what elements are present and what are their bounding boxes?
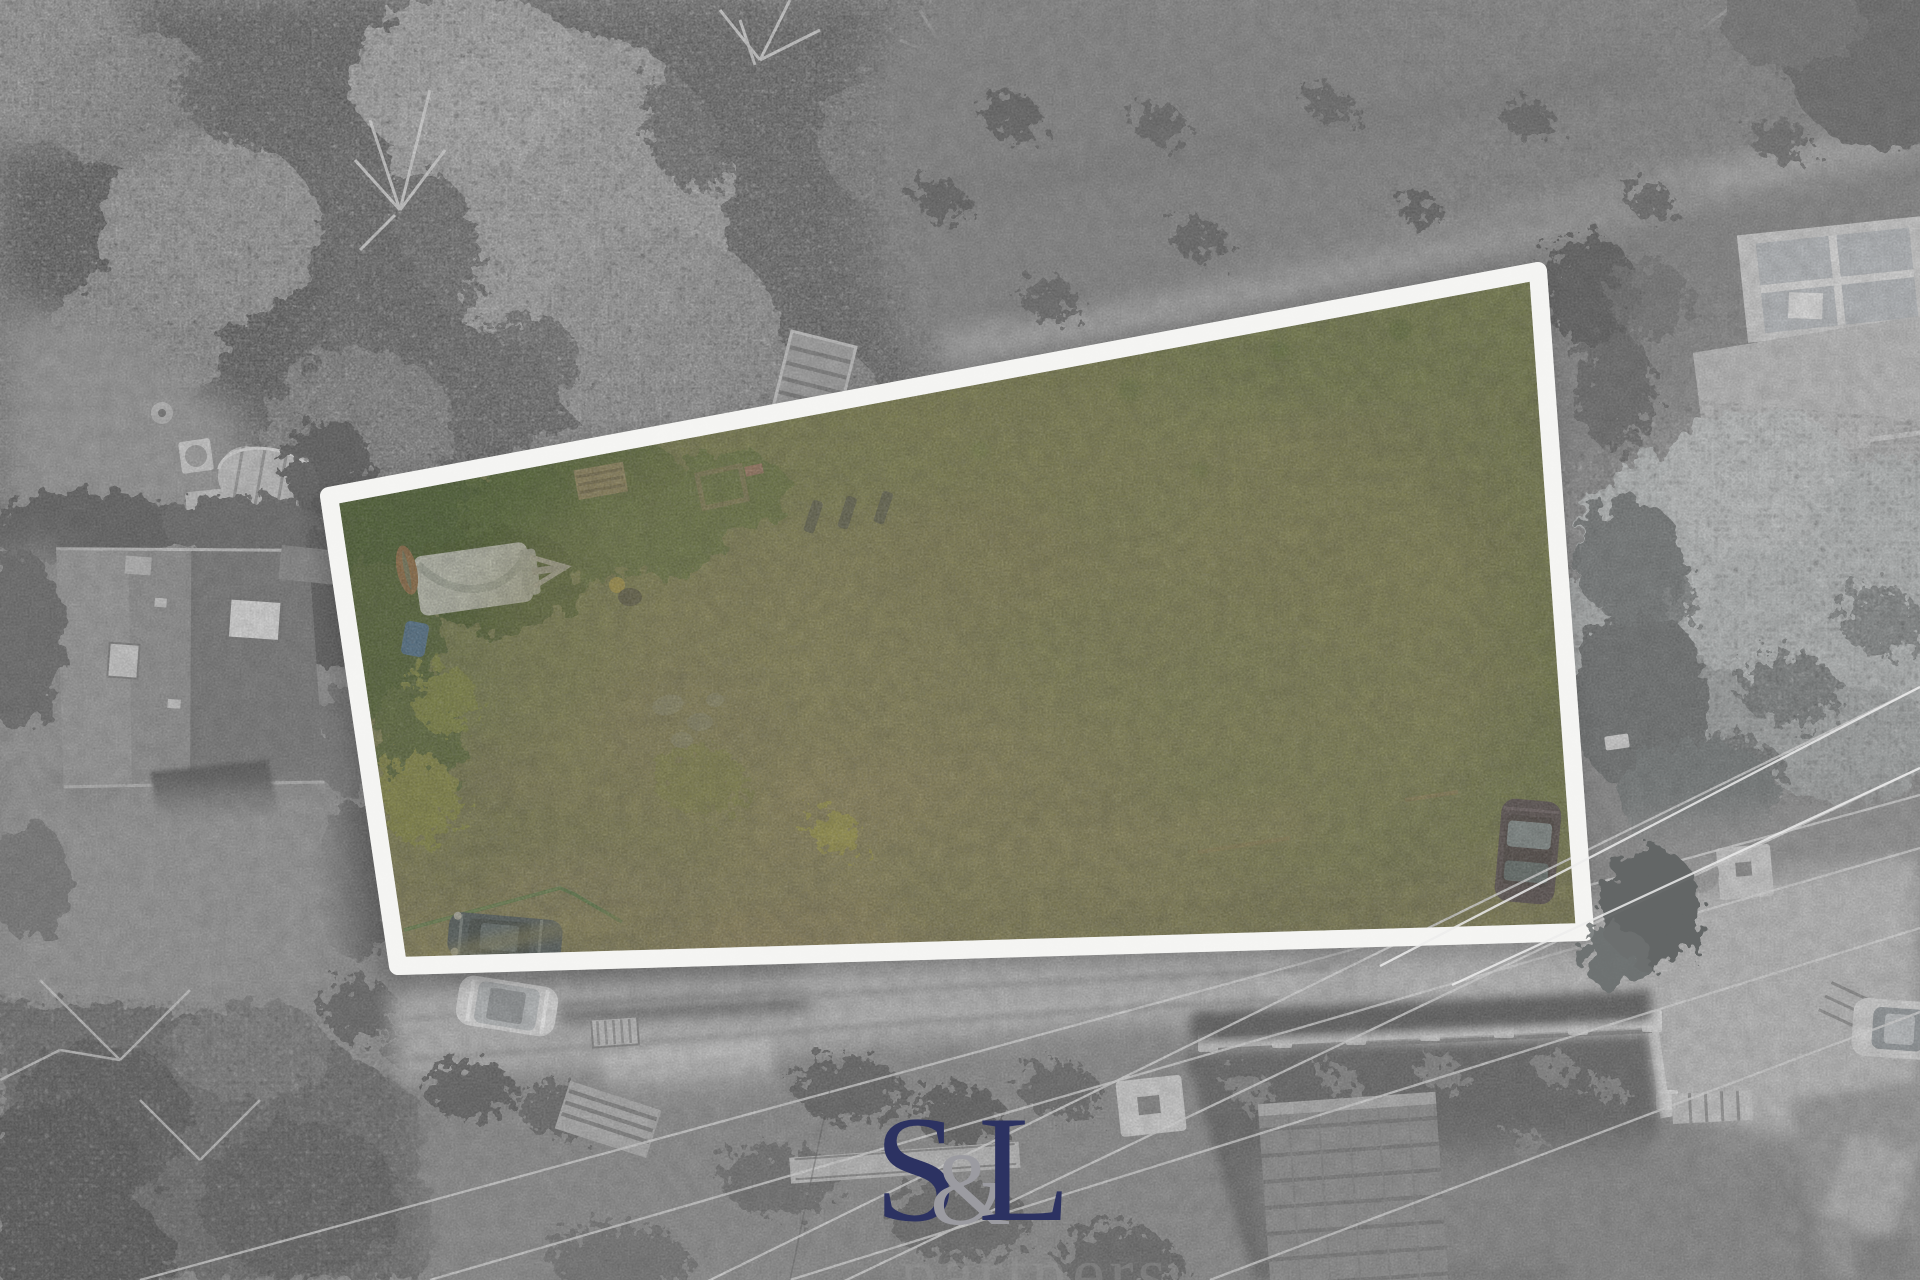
svg-text:L: L — [978, 1085, 1071, 1253]
svg-text:partners: partners — [900, 1233, 1170, 1280]
